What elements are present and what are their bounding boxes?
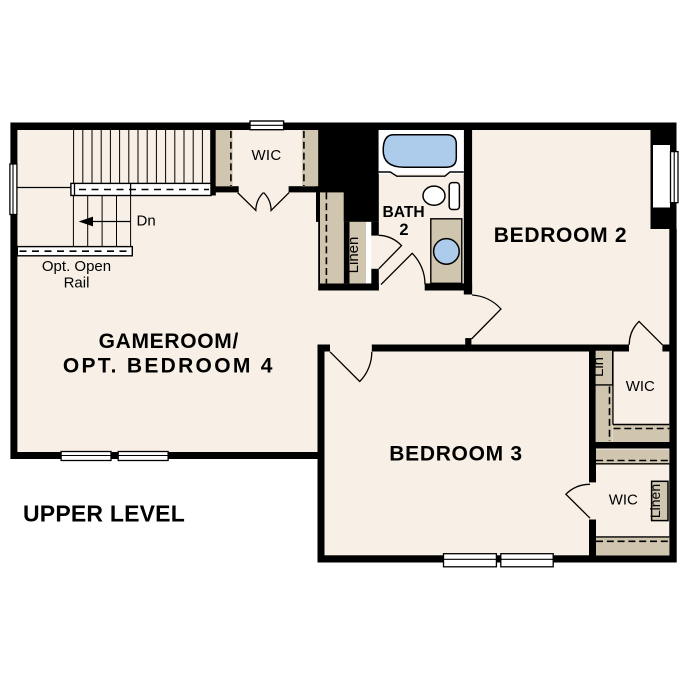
svg-text:BEDROOM 2: BEDROOM 2: [494, 224, 627, 247]
svg-text:Linen: Linen: [345, 237, 362, 274]
svg-text:2: 2: [399, 221, 408, 239]
svg-text:OPT. BEDROOM 4: OPT. BEDROOM 4: [63, 355, 275, 378]
svg-text:Opt. Open: Opt. Open: [42, 258, 111, 275]
svg-text:WIC: WIC: [251, 147, 281, 164]
svg-text:GAMEROOM/: GAMEROOM/: [99, 330, 239, 353]
svg-text:WIC: WIC: [626, 378, 655, 395]
svg-text:Linen: Linen: [647, 484, 663, 518]
svg-text:Rail: Rail: [64, 275, 90, 292]
svg-text:Dn: Dn: [137, 213, 156, 230]
svg-text:WIC: WIC: [609, 492, 638, 509]
svg-text:BEDROOM 3: BEDROOM 3: [389, 443, 522, 466]
svg-text:UPPER LEVEL: UPPER LEVEL: [23, 501, 185, 527]
svg-text:Lin: Lin: [590, 357, 607, 377]
svg-text:BATH: BATH: [383, 204, 425, 221]
